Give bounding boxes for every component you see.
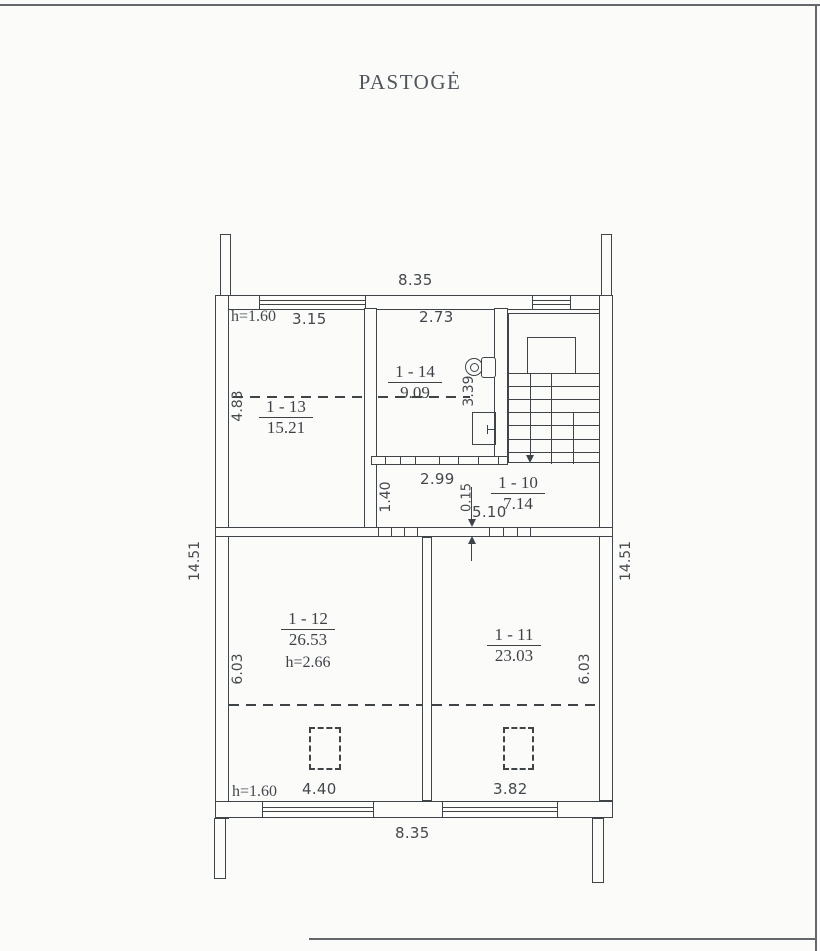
room-number: 1 - 14 [388,363,442,383]
stair-arrow-down-icon [526,455,534,463]
room-label-1-14: 1 - 14 9.09 [383,363,447,403]
shower-tray-icon [472,412,496,445]
stair-direction-line [530,374,531,457]
arrow-up-icon [468,536,476,544]
stairs [508,313,600,463]
dim-wall-thickness: 0.15 [460,478,475,518]
ceiling-dash-r12 [229,704,422,706]
skylight-r12-icon [309,727,341,770]
wall-between-r13-r14 [364,308,377,536]
room-area: 26.53 [276,631,340,649]
dim-r11-depth: 6.03 [577,649,593,689]
window-top-right [532,295,571,310]
stair-divider-2 [573,412,574,464]
dim-attic-height-top: h=1.60 [231,308,276,326]
window-bottom-right [442,801,558,818]
wall-right [599,295,613,801]
ceiling-dash-r11 [432,704,600,706]
dim-right-height: 14.51 [618,541,634,581]
room-label-1-12: 1 - 12 26.53 h=2.66 [276,610,340,671]
wall-stub-bottom-right [592,818,604,883]
dim-attic-height-bottom: h=1.60 [232,783,277,801]
stair-void [527,337,576,374]
window-bottom-left [262,801,374,818]
wall-left [215,295,229,819]
dim-corridor-width: 2.99 [420,470,455,488]
room-label-1-13: 1 - 13 15.21 [252,398,320,438]
room-number: 1 - 12 [281,610,335,630]
wall-stub-bottom-left [214,818,226,879]
dim-r12-width: 4.40 [302,780,337,798]
dim-r12-depth: 6.03 [230,649,246,689]
room-number: 1 - 10 [491,474,545,494]
dim-r11-width: 3.82 [493,780,528,798]
wall-corridor-top [371,456,508,465]
wall-between-r14-stairs [494,308,508,465]
dim-r14-width: 2.73 [419,308,454,326]
skylight-r11-icon [503,727,534,770]
dim-left-height: 14.51 [187,541,203,581]
room-number: 1 - 11 [487,626,540,646]
wall-stub-top-left [220,234,231,296]
dim-r13-width: 3.15 [292,310,327,328]
dim-r13-depth: 4.83 [230,386,246,426]
dim-r14-depth: 3.39 [461,371,477,411]
room-height-note: h=2.66 [276,654,340,671]
room-number: 1 - 13 [259,398,313,418]
dim-top-width: 8.35 [398,271,433,289]
stair-divider [551,373,552,464]
room-area: 9.09 [383,384,447,402]
dim-bottom-width: 8.35 [395,824,430,842]
arrow-line-room11 [471,543,472,561]
room-area: 23.03 [482,647,546,665]
wall-middle [215,527,613,537]
room-label-1-11: 1 - 11 23.03 [482,626,546,666]
room-area: 15.21 [252,419,320,437]
dim-hall-length: 5.10 [472,503,507,521]
wall-stub-top-right [601,234,612,296]
dim-corridor-depth: 1.40 [378,477,394,517]
floor-plan: 1 - 13 15.21 1 - 14 9.09 1 - 10 7.14 1 -… [0,0,820,951]
wall-between-r12-r11 [422,537,432,801]
